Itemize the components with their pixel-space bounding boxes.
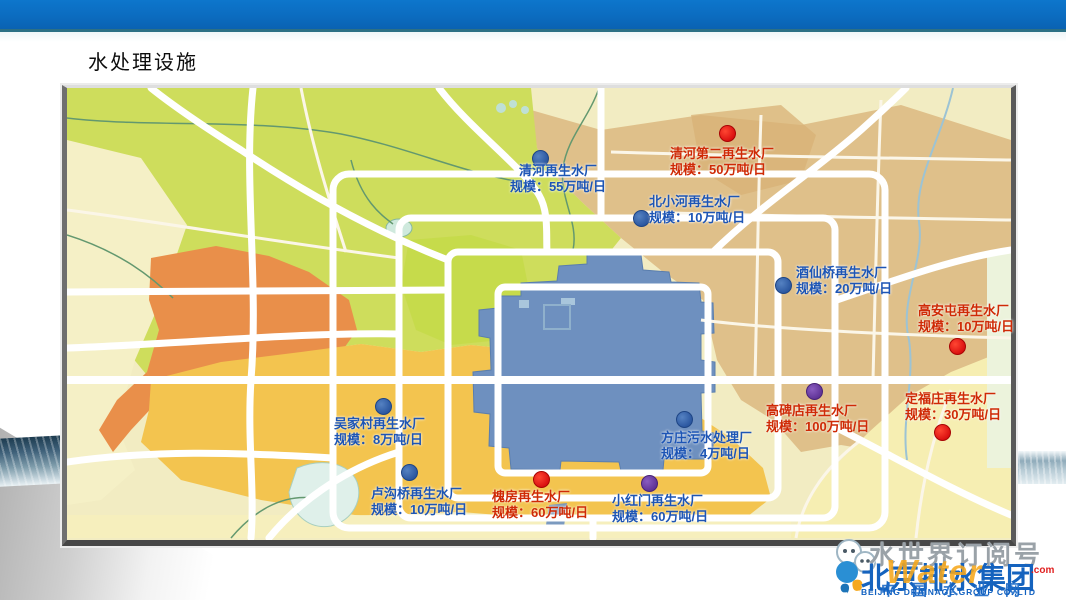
slide: 水处理设施 [0,0,1066,600]
top-banner [0,0,1066,32]
watermark-water-suffix: .com [1031,565,1054,576]
top-banner-fade [0,32,1066,42]
beijing-map-graphic [67,88,1011,540]
page-title: 水处理设施 [88,46,198,75]
beijing-map [62,85,1016,546]
watermark-company-english: BEIJING DRAINAGE GROUP CO.,LTD [861,587,1036,597]
water-texture-right [1008,451,1066,484]
water-texture-left [0,435,69,487]
